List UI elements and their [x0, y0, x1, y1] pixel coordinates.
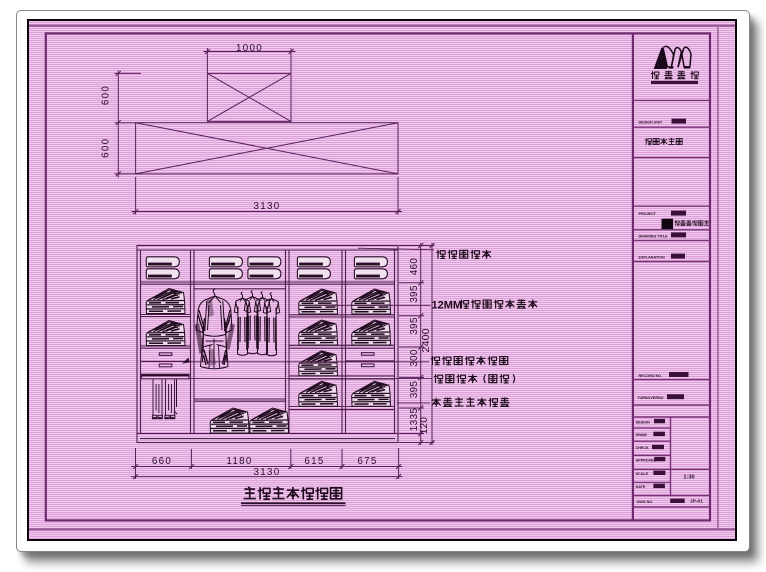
svg-text:EXPLANATION: EXPLANATION: [639, 255, 665, 259]
svg-text:1180: 1180: [226, 456, 252, 467]
svg-text:DRAW: DRAW: [636, 433, 648, 437]
svg-text:DATE: DATE: [636, 485, 646, 489]
svg-text:DRAWING TITLE: DRAWING TITLE: [639, 234, 669, 238]
svg-text:3130: 3130: [254, 467, 281, 478]
svg-text:395: 395: [409, 317, 420, 335]
svg-text:120: 120: [419, 417, 430, 435]
svg-text:JP-01: JP-01: [690, 499, 703, 505]
svg-text:1000: 1000: [236, 43, 263, 54]
svg-text:395: 395: [409, 285, 420, 303]
svg-text:660: 660: [152, 456, 172, 467]
svg-text:PROJECT: PROJECT: [639, 212, 657, 216]
svg-text:RECORD NO.: RECORD NO.: [639, 374, 663, 378]
svg-text:CHECK: CHECK: [636, 446, 649, 450]
svg-text:1:30: 1:30: [683, 474, 694, 480]
svg-text:300: 300: [409, 349, 420, 367]
svg-text:3130: 3130: [254, 201, 281, 212]
svg-text:12MM: 12MM: [432, 300, 463, 312]
svg-text:DESIGN: DESIGN: [636, 421, 650, 425]
svg-text:395: 395: [409, 381, 420, 399]
svg-text:TURNOVERNO: TURNOVERNO: [637, 396, 663, 400]
svg-text:DESIGN UNIT: DESIGN UNIT: [639, 121, 664, 125]
svg-text:APPROVED: APPROVED: [636, 458, 657, 462]
svg-text:600: 600: [101, 138, 112, 158]
svg-text:2400: 2400: [421, 328, 432, 352]
svg-text:460: 460: [409, 258, 420, 276]
svg-text:600: 600: [101, 85, 112, 105]
svg-text:615: 615: [304, 456, 324, 467]
svg-text:SCALE: SCALE: [636, 472, 649, 476]
svg-text:DWG NO.: DWG NO.: [637, 500, 654, 504]
svg-text:675: 675: [357, 456, 377, 467]
